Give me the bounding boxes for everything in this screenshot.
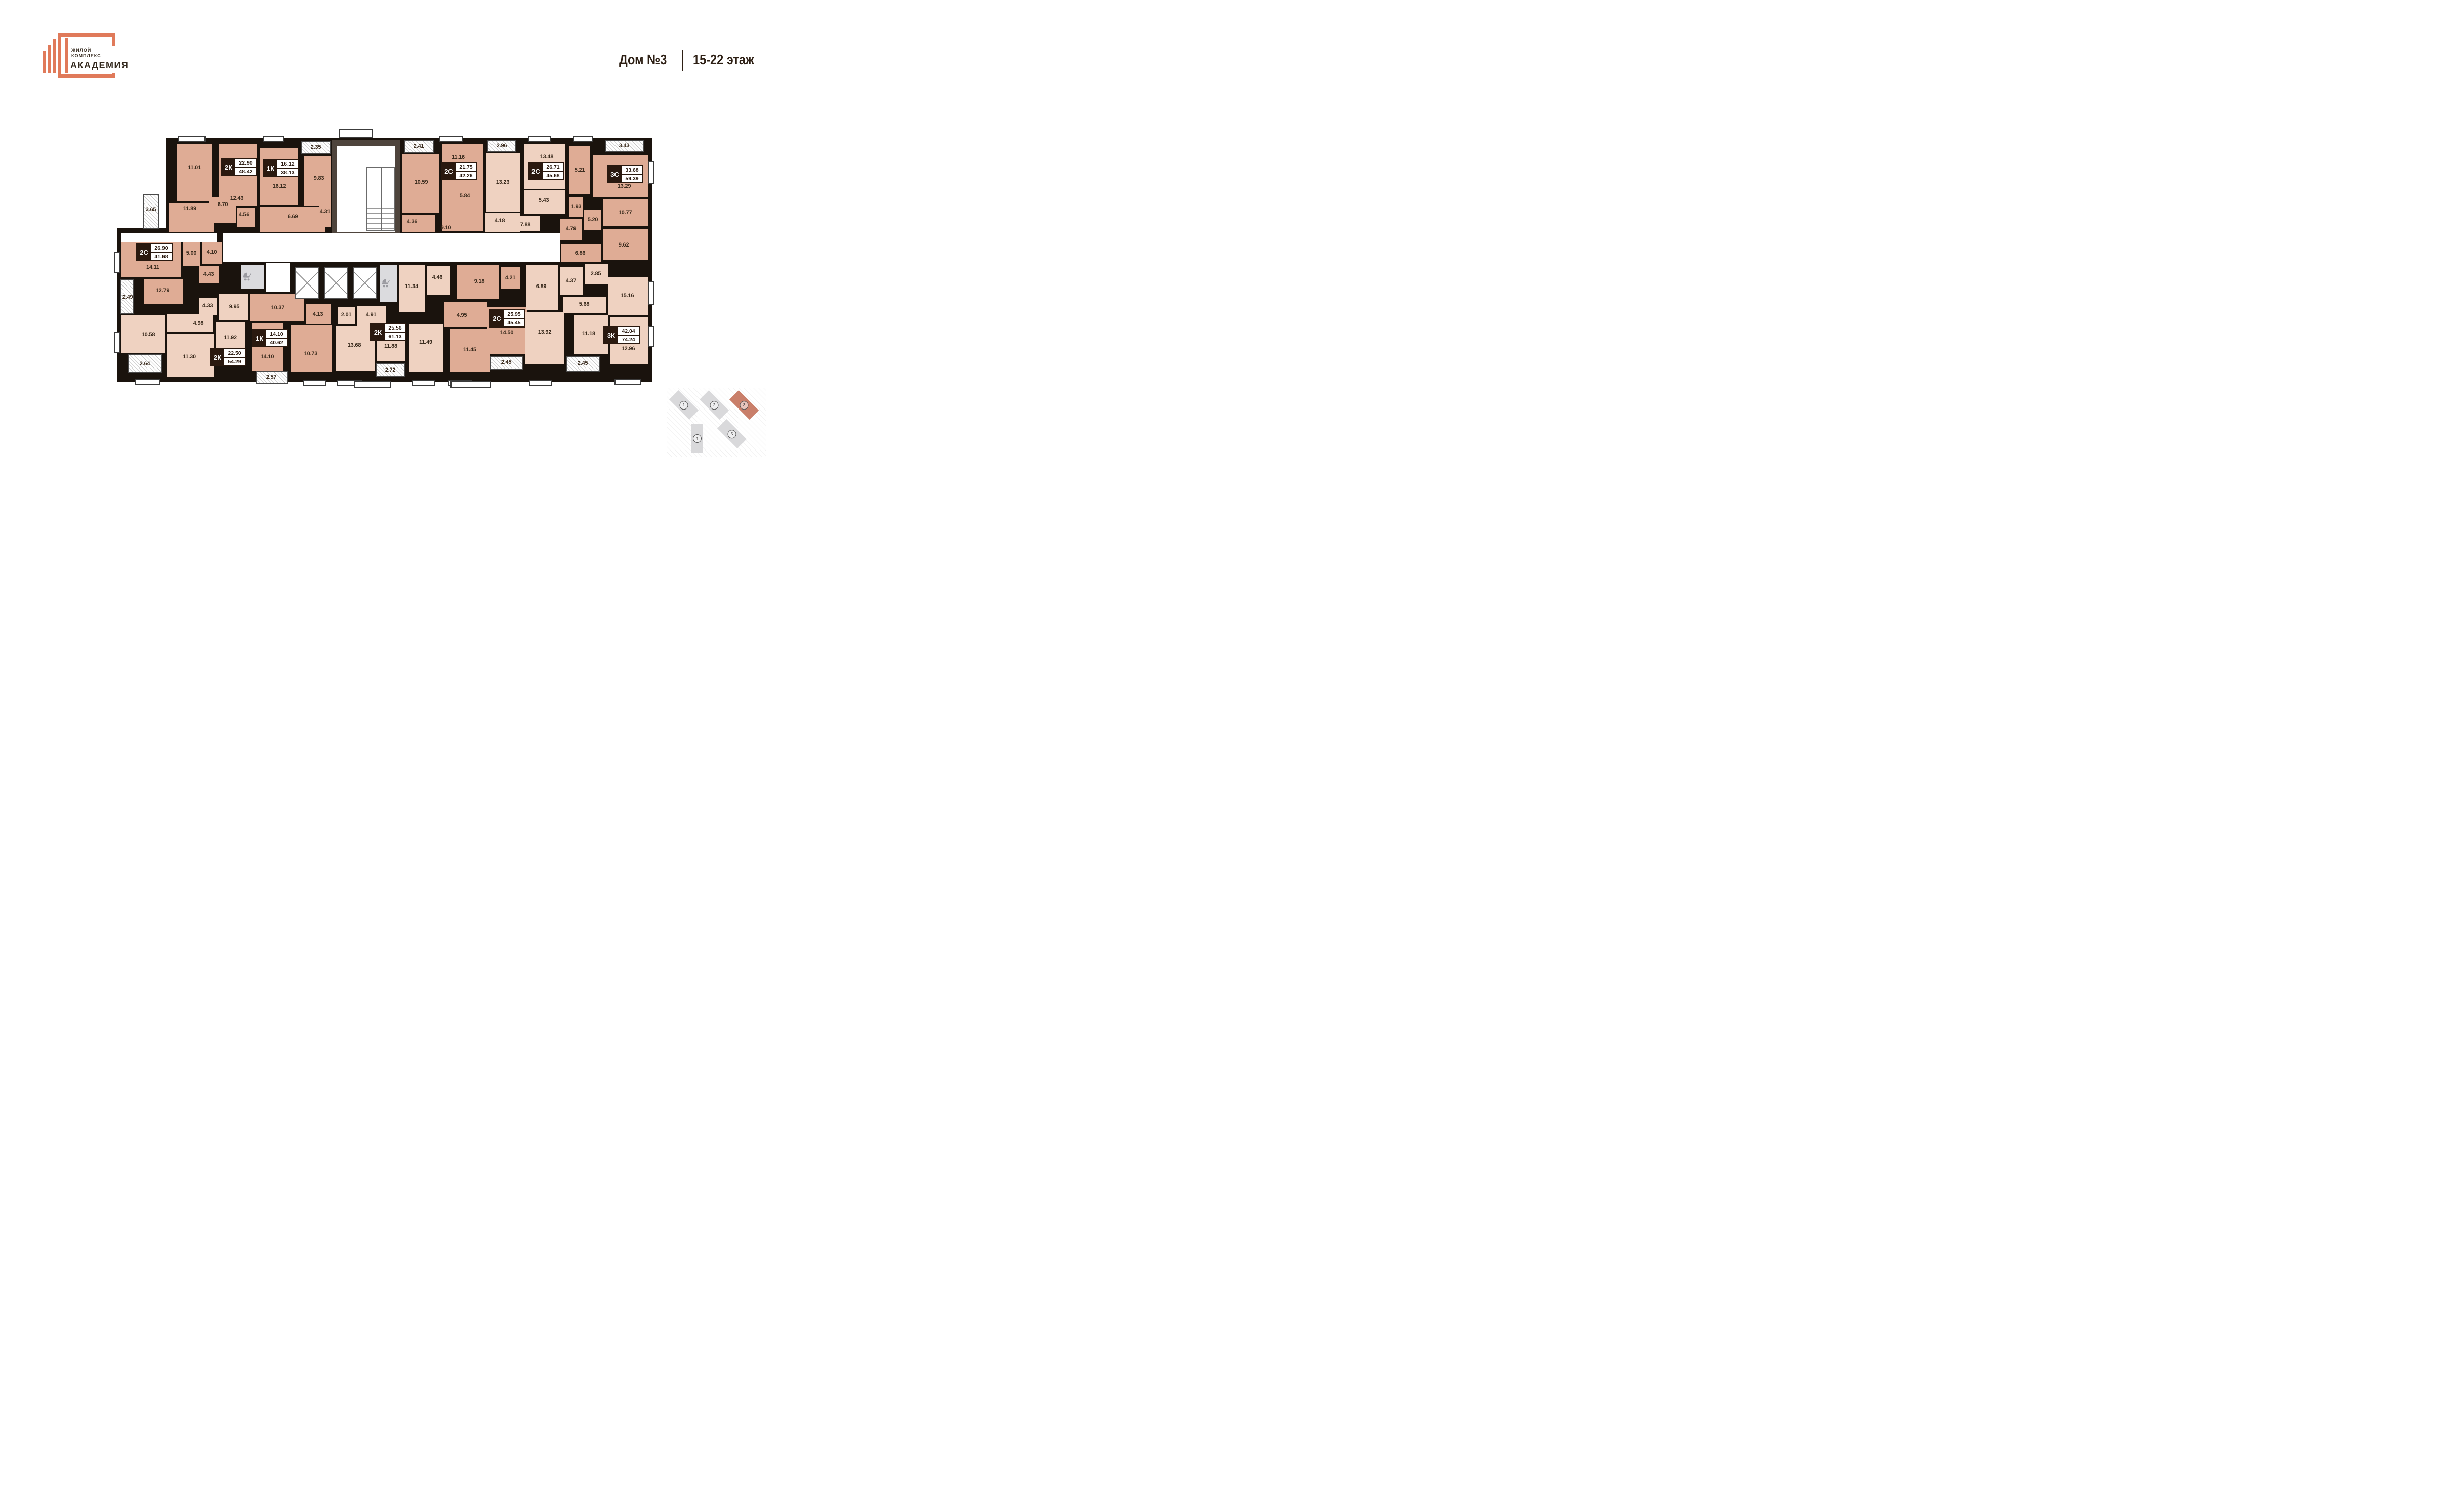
apartment-type: 2С xyxy=(137,244,151,260)
window-mark xyxy=(573,136,593,142)
room-area-label: 4.33 xyxy=(202,303,213,309)
window-mark xyxy=(614,379,641,385)
room-area-label: 6.69 xyxy=(288,214,298,220)
room-area-label: 11.92 xyxy=(224,335,237,341)
room-area-label: 2.72 xyxy=(385,367,396,373)
room-area-label: 5.43 xyxy=(539,197,549,203)
apartment-total-area: 38.13 xyxy=(277,169,298,176)
apartment-living-area: 22.50 xyxy=(224,349,245,358)
window-mark xyxy=(439,136,463,142)
room-area-label: 14.10 xyxy=(261,354,274,360)
apartment-living-area: 25.95 xyxy=(504,310,524,319)
room-shape xyxy=(525,312,564,364)
apartment-badge-2С[interactable]: 2С26.7145.68 xyxy=(528,162,564,180)
room-area-label: 10.58 xyxy=(142,332,155,338)
apartment-badge-2К[interactable]: 2К22.5054.29 xyxy=(210,348,246,366)
room-area-label: 13.29 xyxy=(618,183,631,189)
apartment-badge-2С[interactable]: 2С25.9545.45 xyxy=(489,309,525,328)
room-area-label: 5.00 xyxy=(186,250,197,256)
room-area-label: 11.89 xyxy=(183,206,196,212)
minimap-building-1[interactable]: 1 xyxy=(669,390,699,420)
room-area-label: 14.11 xyxy=(146,264,159,270)
apartment-type: 2К xyxy=(222,159,235,175)
stroller-icon xyxy=(381,278,391,289)
room-area-label: 9.10 xyxy=(441,225,452,231)
elevator-shaft[interactable] xyxy=(324,267,348,299)
apartment-living-area: 25.56 xyxy=(385,324,405,333)
apartment-total-area: 54.29 xyxy=(224,358,245,365)
minimap-building-number: 5 xyxy=(728,430,736,438)
apartment-badge-2К[interactable]: 2К25.5661.13 xyxy=(370,323,406,341)
apartment-total-area: 45.45 xyxy=(504,319,524,326)
apartment-badge-3К[interactable]: 3К42.0474.24 xyxy=(603,326,640,344)
apartment-total-area: 41.68 xyxy=(151,253,172,260)
apartment-total-area: 40.62 xyxy=(266,339,287,346)
window-mark xyxy=(178,136,206,142)
room-area-label: 11.18 xyxy=(582,331,595,337)
room-area-label: 10.37 xyxy=(271,305,285,311)
page: ЖИЛОЙ КОМПЛЕКС АКАДЕМИЯ Дом №3 15-22 эта… xyxy=(0,0,794,488)
minimap-building-number: 4 xyxy=(693,434,702,443)
apartment-type: 2С xyxy=(529,163,543,179)
room-area-label: 5.21 xyxy=(575,167,585,173)
apartment-badge-2К[interactable]: 2К22.9048.42 xyxy=(221,158,257,176)
room-area-label: 4.36 xyxy=(407,219,418,225)
room-area-label: 10.59 xyxy=(415,179,428,185)
room-area-label: 4.46 xyxy=(432,274,443,280)
apartment-type: 1К xyxy=(253,330,266,346)
room-area-label: 4.18 xyxy=(495,218,505,224)
room-area-label: 13.23 xyxy=(496,179,510,185)
room-area-label: 4.79 xyxy=(566,226,577,232)
room-area-label: 2.41 xyxy=(414,143,424,149)
window-mark xyxy=(648,326,654,347)
room-area-label: 13.92 xyxy=(538,329,552,335)
apartment-badge-2С[interactable]: 2С26.9041.68 xyxy=(136,243,173,261)
apartment-type: 2К xyxy=(211,349,224,365)
room-shape xyxy=(177,144,212,201)
window-mark xyxy=(450,381,491,388)
room-area-label: 2.35 xyxy=(311,144,321,150)
apartment-total-area: 59.39 xyxy=(622,175,642,182)
window-mark xyxy=(529,380,552,386)
apartment-type: 2К xyxy=(371,324,385,340)
room-area-label: 6.89 xyxy=(536,283,547,290)
window-mark xyxy=(114,332,120,353)
window-mark xyxy=(114,252,120,273)
minimap-building-4[interactable]: 4 xyxy=(691,424,703,453)
apartment-living-area: 26.90 xyxy=(151,244,172,253)
minimap-building-2[interactable]: 2 xyxy=(700,390,729,420)
apartment-type: 2С xyxy=(490,310,504,326)
minimap-building-3[interactable]: 3 xyxy=(729,390,759,420)
elevator-shaft[interactable] xyxy=(353,267,377,299)
room-area-label: 4.37 xyxy=(566,278,577,284)
room-shape xyxy=(409,324,443,372)
room-area-label: 5.20 xyxy=(588,217,598,223)
window-mark xyxy=(354,381,391,388)
apartment-type: 2С xyxy=(442,163,456,179)
room-area-label: 6.70 xyxy=(218,201,228,208)
minimap-building-number: 2 xyxy=(710,401,719,410)
apartment-badge-2С[interactable]: 2С21.7542.26 xyxy=(441,162,477,180)
apartment-total-area: 42.26 xyxy=(456,172,476,179)
room-area-label: 11.49 xyxy=(419,339,432,345)
apartment-living-area: 33.68 xyxy=(622,166,642,175)
room-shape xyxy=(167,314,213,332)
apartment-living-area: 16.12 xyxy=(277,160,298,169)
room-area-label: 11.34 xyxy=(405,283,418,290)
apartment-living-area: 14.10 xyxy=(266,330,287,339)
apartment-total-area: 48.42 xyxy=(235,168,256,175)
apartment-total-area: 61.13 xyxy=(385,333,405,340)
room-area-label: 2.45 xyxy=(578,360,588,366)
room-area-label: 4.10 xyxy=(207,249,217,255)
room-area-label: 12.79 xyxy=(156,288,170,294)
room-area-label: 3.43 xyxy=(619,143,630,149)
room-area-label: 2.49 xyxy=(122,294,133,300)
apartment-living-area: 21.75 xyxy=(456,163,476,172)
room-area-label: 7.88 xyxy=(520,222,531,228)
room-area-label: 11.88 xyxy=(384,343,397,349)
apartment-type: 1К xyxy=(264,160,277,176)
apartment-type: 3С xyxy=(608,166,622,182)
room-area-label: 9.83 xyxy=(314,175,324,181)
room-area-label: 13.48 xyxy=(540,154,554,160)
apartment-total-area: 74.24 xyxy=(618,336,639,343)
room-area-label: 9.62 xyxy=(619,242,629,248)
room-area-label: 11.01 xyxy=(188,165,201,171)
elevator-shaft[interactable] xyxy=(295,267,319,299)
room-area-label: 14.50 xyxy=(500,330,514,336)
stairwell xyxy=(366,167,395,231)
apartment-type: 3К xyxy=(604,327,618,343)
window-mark xyxy=(263,136,284,142)
room-area-label: 15.16 xyxy=(621,293,634,299)
corridor xyxy=(223,233,560,262)
room-area-label: 2.45 xyxy=(501,359,512,365)
room-area-label: 13.68 xyxy=(348,342,361,348)
apartment-living-area: 26.71 xyxy=(543,163,563,172)
apartment-badge-1К[interactable]: 1К16.1238.13 xyxy=(263,159,299,177)
site-minimap: 12345 xyxy=(667,388,766,457)
room-area-label: 1.93 xyxy=(571,203,582,210)
room-area-label: 5.68 xyxy=(579,301,590,307)
room-area-label: 2.01 xyxy=(341,312,352,318)
room-area-label: 5.84 xyxy=(460,193,470,199)
window-mark xyxy=(528,136,551,142)
room-area-label: 2.96 xyxy=(497,143,507,149)
room-area-label: 2.64 xyxy=(140,361,150,367)
corridor xyxy=(121,233,217,242)
minimap-building-number: 1 xyxy=(680,401,688,410)
window-mark xyxy=(648,161,654,184)
room-area-label: 4.31 xyxy=(320,209,331,215)
room-area-label: 11.30 xyxy=(183,354,196,360)
room-area-label: 11.16 xyxy=(452,154,465,160)
corridor xyxy=(266,263,290,292)
minimap-building-5[interactable]: 5 xyxy=(717,419,747,448)
room-area-label: 4.56 xyxy=(239,212,250,218)
room-area-label: 4.91 xyxy=(366,312,377,318)
room-area-label: 4.98 xyxy=(193,320,204,326)
room-area-label: 10.73 xyxy=(304,351,318,357)
room-area-label: 4.13 xyxy=(313,311,323,317)
room-area-label: 9.18 xyxy=(474,278,485,284)
room-area-label: 10.77 xyxy=(619,210,632,216)
minimap-building-number: 3 xyxy=(740,401,749,410)
window-mark xyxy=(135,379,160,385)
window-mark xyxy=(303,380,326,386)
room-shape xyxy=(336,326,375,371)
room-area-label: 6.86 xyxy=(575,250,586,256)
window-mark xyxy=(339,129,373,138)
room-area-label: 4.43 xyxy=(203,271,214,277)
apartment-living-area: 42.04 xyxy=(618,327,639,336)
room-area-label: 11.45 xyxy=(463,347,476,353)
room-area-label: 2.85 xyxy=(591,271,601,277)
room-area-label: 9.95 xyxy=(229,304,240,310)
apartment-total-area: 45.68 xyxy=(543,172,563,179)
room-shape xyxy=(427,266,450,295)
room-shape xyxy=(291,325,332,372)
apartment-badge-1К[interactable]: 1К14.1040.62 xyxy=(252,329,288,347)
window-mark xyxy=(648,281,654,305)
stroller-icon xyxy=(242,272,252,282)
room-area-label: 16.12 xyxy=(273,183,286,189)
apartment-living-area: 22.90 xyxy=(235,159,256,168)
window-mark xyxy=(412,380,435,386)
apartment-badge-3С[interactable]: 3С33.6859.39 xyxy=(607,165,643,183)
room-area-label: 4.95 xyxy=(457,312,467,318)
room-area-label: 4.21 xyxy=(505,275,516,281)
room-area-label: 12.43 xyxy=(230,195,244,201)
room-area-label: 12.96 xyxy=(622,346,635,352)
room-area-label: 3.65 xyxy=(146,207,156,213)
room-area-label: 2.57 xyxy=(266,374,277,380)
